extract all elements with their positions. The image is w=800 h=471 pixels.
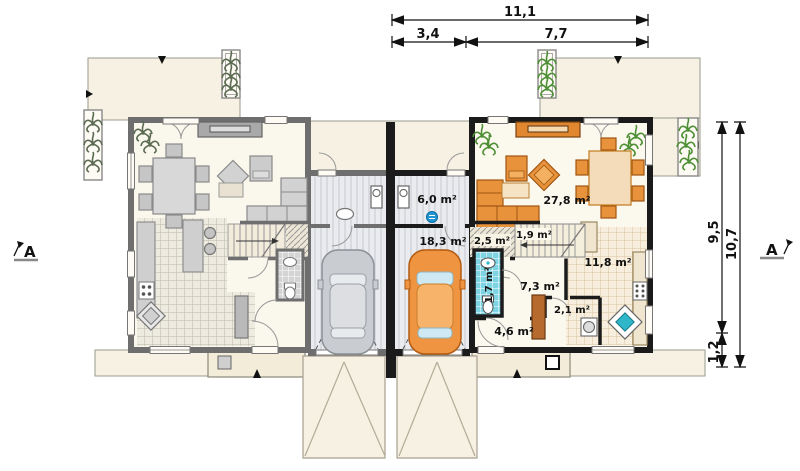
driveway-right [397,356,477,458]
terrace-right [540,58,700,120]
entry-door [252,347,278,354]
stool-icon [205,228,216,239]
label-pantry-area: 2,1 m² [554,305,590,316]
stove-icon [139,282,154,299]
entry-door [478,347,504,354]
driveway-left [303,356,385,458]
doormat [546,356,559,369]
label-corridor-area: 2,5 m² [474,236,510,247]
label-storage-area: 6,0 m² [417,193,457,206]
closet [235,296,248,338]
dim-top-right: 7,7 [544,27,567,42]
closet [532,295,545,339]
label-wc-area: 1,7 m² [484,267,495,303]
section-marker-left: A [14,241,38,261]
washer-icon [581,318,597,336]
sink-icon [337,209,354,220]
planter-right-side [677,118,698,176]
section-marker-right: A [760,239,793,259]
party-wall-stub [386,352,396,378]
party-wall [386,122,395,355]
label-kitchen-area: 11,8 m² [584,256,631,269]
dim-top-total: 11,1 [504,5,536,20]
label-hall-area: 7,3 m² [520,280,560,293]
window [488,117,508,124]
dim-right-upper: 9,5 [707,220,722,243]
left-unit [128,117,309,354]
section-letter: A [24,243,36,261]
planter-left-side [84,110,102,180]
terrace-left [88,58,240,120]
floor-plan-svg: 6,0 m² 18,3 m² [0,0,800,471]
label-living-area: 27,8 m² [543,194,590,207]
washbasin-icon [284,258,297,267]
eave-bottom-right [570,350,705,376]
planter-top-right [538,50,556,98]
right-unit: 27,8 m² 11,8 m² 7,3 m² 4,6 m² 2,1 m² 2,5… [470,117,653,354]
label-garage-area: 18,3 m² [419,235,466,248]
label-vestibule-area: 4,6 m² [494,325,534,338]
planter-top-left [222,50,240,98]
drain-icon [427,212,438,223]
washbasin-icon [481,258,495,268]
stove-icon [633,282,647,300]
label-understairs-area: 1,9 m² [516,230,552,241]
car-icon [405,250,465,354]
section-letter: A [766,241,778,259]
floor-plan: 6,0 m² 18,3 m² [0,0,800,471]
stool-icon [205,244,216,255]
dim-right-total: 10,7 [725,228,740,260]
dim-right-lower: 1,2 [707,340,722,363]
toilet-icon [285,283,296,299]
porch-left [208,350,305,378]
porch-right [472,350,570,378]
dim-top-left: 3,4 [416,27,439,42]
kitchen-island [183,220,203,272]
car-icon [318,250,378,354]
doormat [218,356,231,369]
